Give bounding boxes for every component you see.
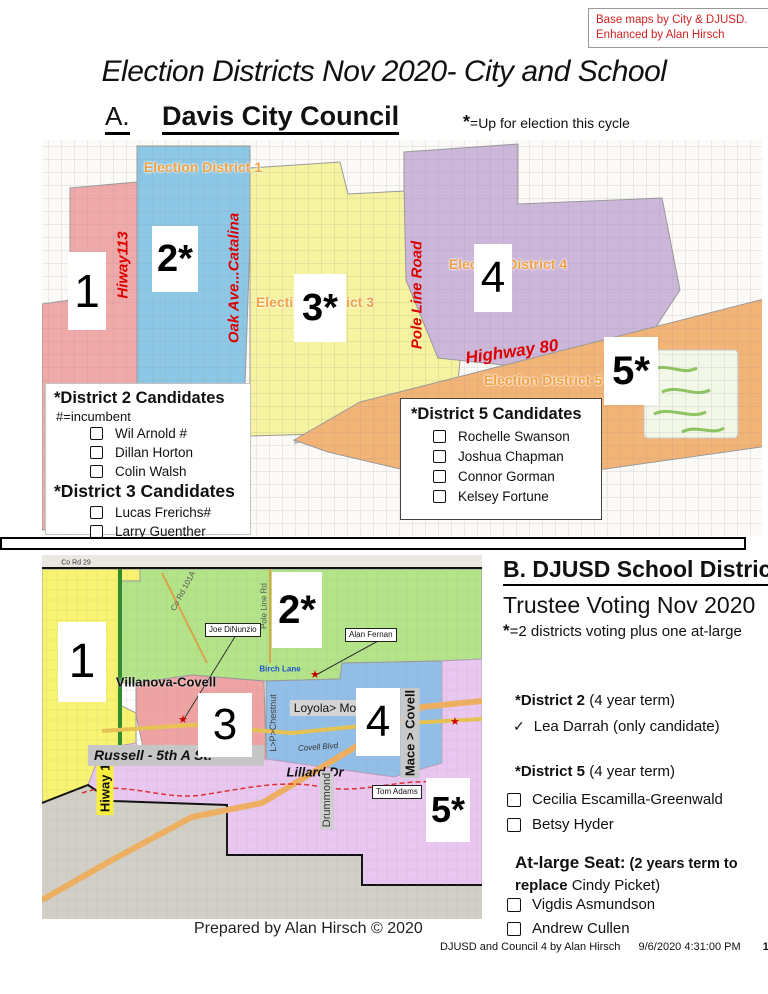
council-district-box-2: 2* <box>152 226 198 292</box>
council-district-box-5: 5* <box>604 337 658 405</box>
section-divider <box>0 537 746 550</box>
incumbent-legend: #=incumbent <box>56 409 242 424</box>
checkmark-icon: ✓ <box>513 718 525 735</box>
school-location-star-icon: ★ <box>450 717 460 728</box>
district-5-term-title: *District 5 (4 year term) <box>515 763 675 780</box>
footer-doc-name: DJUSD and Council 4 by Alan Hirsch <box>440 941 620 953</box>
school-district-map: Villanova-Covell Loyola> Monarch Hiway 1… <box>42 555 482 919</box>
candidate-row: Rochelle Swanson <box>433 429 591 444</box>
candidate-row: Wil Arnold # <box>90 426 242 441</box>
candidate-row: Colin Walsh <box>90 464 242 479</box>
candidate-row: Joshua Chapman <box>433 449 591 464</box>
checkbox-icon <box>433 450 446 463</box>
document-footer: DJUSD and Council 4 by Alan Hirsch 9/6/2… <box>440 941 768 953</box>
credit-line-2: Enhanced by Alan Hirsch <box>596 28 764 43</box>
area-label-villanova-covell: Villanova-Covell <box>116 675 216 690</box>
district-2-3-candidates-box: *District 2 Candidates #=incumbent Wil A… <box>45 383 251 535</box>
section-b-subheading: Trustee Voting Nov 2020 <box>503 592 765 619</box>
candidate-name: Connor Gorman <box>458 469 555 484</box>
callout-alan-fernan: Alan Fernan <box>345 628 397 642</box>
candidate-name: Dillan Horton <box>115 445 193 460</box>
candidate-row: Lucas Frerichs# <box>90 505 242 520</box>
candidate-name: Joshua Chapman <box>458 449 564 464</box>
council-district-box-1: 1 <box>68 252 106 330</box>
checkbox-icon <box>433 430 446 443</box>
candidate-name: Andrew Cullen <box>532 920 630 937</box>
checkbox-icon <box>507 793 521 807</box>
candidate-name: Kelsey Fortune <box>458 489 549 504</box>
council-district-box-4: 4 <box>474 244 512 312</box>
school-location-star-icon: ★ <box>310 670 320 681</box>
candidate-row: Betsy Hyder <box>507 816 614 833</box>
asterisk-icon: * <box>463 112 470 132</box>
district-5-candidates-title: *District 5 Candidates <box>411 405 591 424</box>
section-b-note: *=2 districts voting plus one at-large <box>503 621 765 641</box>
road-label-pole-line-rd: Pole Line Rd <box>260 583 269 629</box>
candidate-name: Rochelle Swanson <box>458 429 570 444</box>
district-5-candidates-box: *District 5 Candidates Rochelle Swanson … <box>400 398 602 520</box>
candidate-row: Cecilia Escamilla-Greenwald <box>507 791 723 808</box>
checkbox-icon <box>507 898 521 912</box>
prepared-by-credit: Prepared by Alan Hirsch © 2020 <box>190 920 427 938</box>
candidate-name: Vigdis Asmundson <box>532 896 655 913</box>
checkbox-icon <box>90 446 103 459</box>
footer-datetime: 9/6/2020 4:31:00 PM <box>638 941 740 953</box>
section-b-heading: B. DJUSD School District <box>503 556 768 586</box>
checkbox-icon <box>90 506 103 519</box>
footer-page-number: 1 <box>763 941 768 953</box>
road-label-pole-line-road: Pole Line Road <box>409 241 426 349</box>
school-district-box-5: 5* <box>426 778 470 842</box>
checkbox-icon <box>507 818 521 832</box>
checkbox-icon <box>90 465 103 478</box>
checkbox-icon <box>90 427 103 440</box>
callout-tom-adams: Tom Adams <box>372 785 422 799</box>
page-title: Election Districts Nov 2020- City and Sc… <box>0 55 768 89</box>
road-label-lillard-dr: Lillard Dr <box>286 765 343 780</box>
school-district-box-1: 1 <box>58 622 106 702</box>
road-label-oak-ave-catalina: Oak Ave...Catalina <box>226 213 243 343</box>
district-2-term-title: *District 2 (4 year term) <box>515 692 675 709</box>
section-a-label: A. <box>105 101 130 135</box>
candidate-name: Cecilia Escamilla-Greenwald <box>532 791 723 808</box>
candidate-name: Lucas Frerichs# <box>115 505 211 520</box>
school-district-box-2: 2* <box>272 572 322 648</box>
candidate-row: Vigdis Asmundson <box>507 896 655 913</box>
road-label-mace-covell: Mace > Covell <box>401 688 420 778</box>
school-district-box-4: 4 <box>356 688 400 756</box>
checkbox-icon <box>433 490 446 503</box>
council-district-box-3: 3* <box>294 274 346 342</box>
candidate-row: ✓ Lea Darrah (only candidate) <box>513 718 720 735</box>
section-a-note: *=Up for election this cycle <box>463 112 630 133</box>
checkbox-icon <box>433 470 446 483</box>
candidate-name: Colin Walsh <box>115 464 187 479</box>
checkbox-icon <box>507 922 521 936</box>
road-label-chestnut: L>P>Chestnut <box>268 694 278 752</box>
section-a-heading: Davis City Council <box>162 101 399 135</box>
candidate-row: Connor Gorman <box>433 469 591 484</box>
callout-joe-dinunzio: Joe DiNunzio <box>205 623 261 637</box>
road-label-birch-lane: Birch Lane <box>259 665 300 674</box>
at-large-seat-title: At-large Seat: (2 years term to replace … <box>515 852 765 896</box>
credit-line-1: Base maps by City & DJUSD. <box>596 13 764 28</box>
area-label-district-5: Election District 5 <box>484 372 602 388</box>
school-location-star-icon: ★ <box>178 715 188 726</box>
candidate-row: Kelsey Fortune <box>433 489 591 504</box>
credit-box: Base maps by City & DJUSD. Enhanced by A… <box>588 8 768 48</box>
candidate-row: Dillan Horton <box>90 445 242 460</box>
district-3-candidates-title: *District 3 Candidates <box>54 481 242 502</box>
road-label-drummond: Drummond <box>320 771 334 829</box>
asterisk-icon: * <box>503 621 510 640</box>
district-2-candidates-title: *District 2 Candidates <box>54 389 242 408</box>
area-label-district-1: Election District 1 <box>144 159 262 175</box>
flyer-page: Base maps by City & DJUSD. Enhanced by A… <box>0 0 768 994</box>
candidate-row: Andrew Cullen <box>507 920 630 937</box>
candidate-name: Lea Darrah (only candidate) <box>534 718 720 735</box>
road-label-hiway113: Hiway113 <box>115 231 132 298</box>
school-district-box-3: 3 <box>198 693 252 757</box>
council-district-map: Election District 1 Election District 3 … <box>42 140 762 536</box>
candidate-name: Wil Arnold # <box>115 426 187 441</box>
candidate-name: Betsy Hyder <box>532 816 614 833</box>
road-label-co-rd-29: Co Rd 29 <box>61 560 91 567</box>
